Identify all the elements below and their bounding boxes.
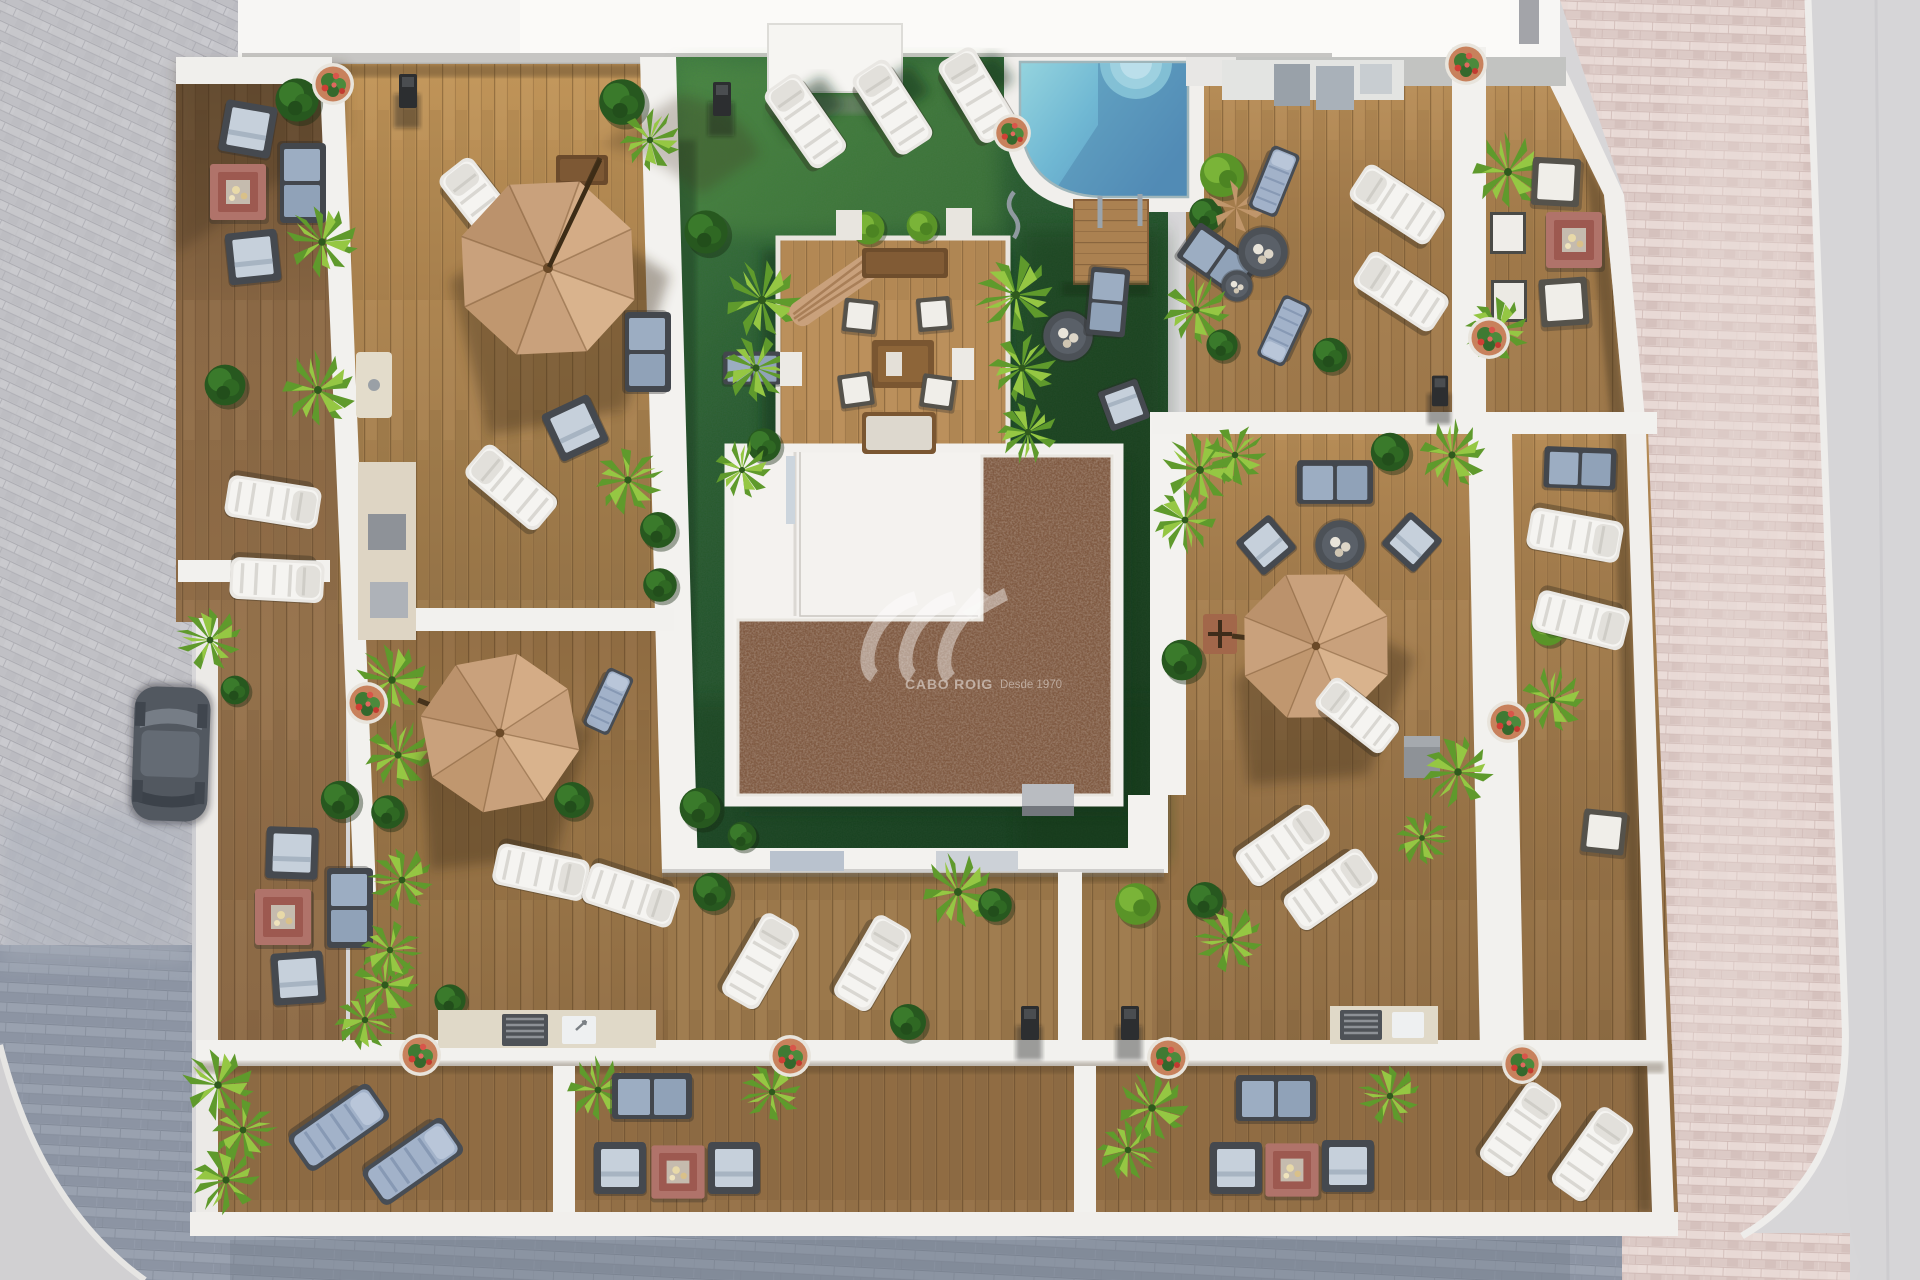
svg-text:CABO ROIG: CABO ROIG [905,676,993,692]
svg-text:Desde 1970: Desde 1970 [1000,679,1062,691]
